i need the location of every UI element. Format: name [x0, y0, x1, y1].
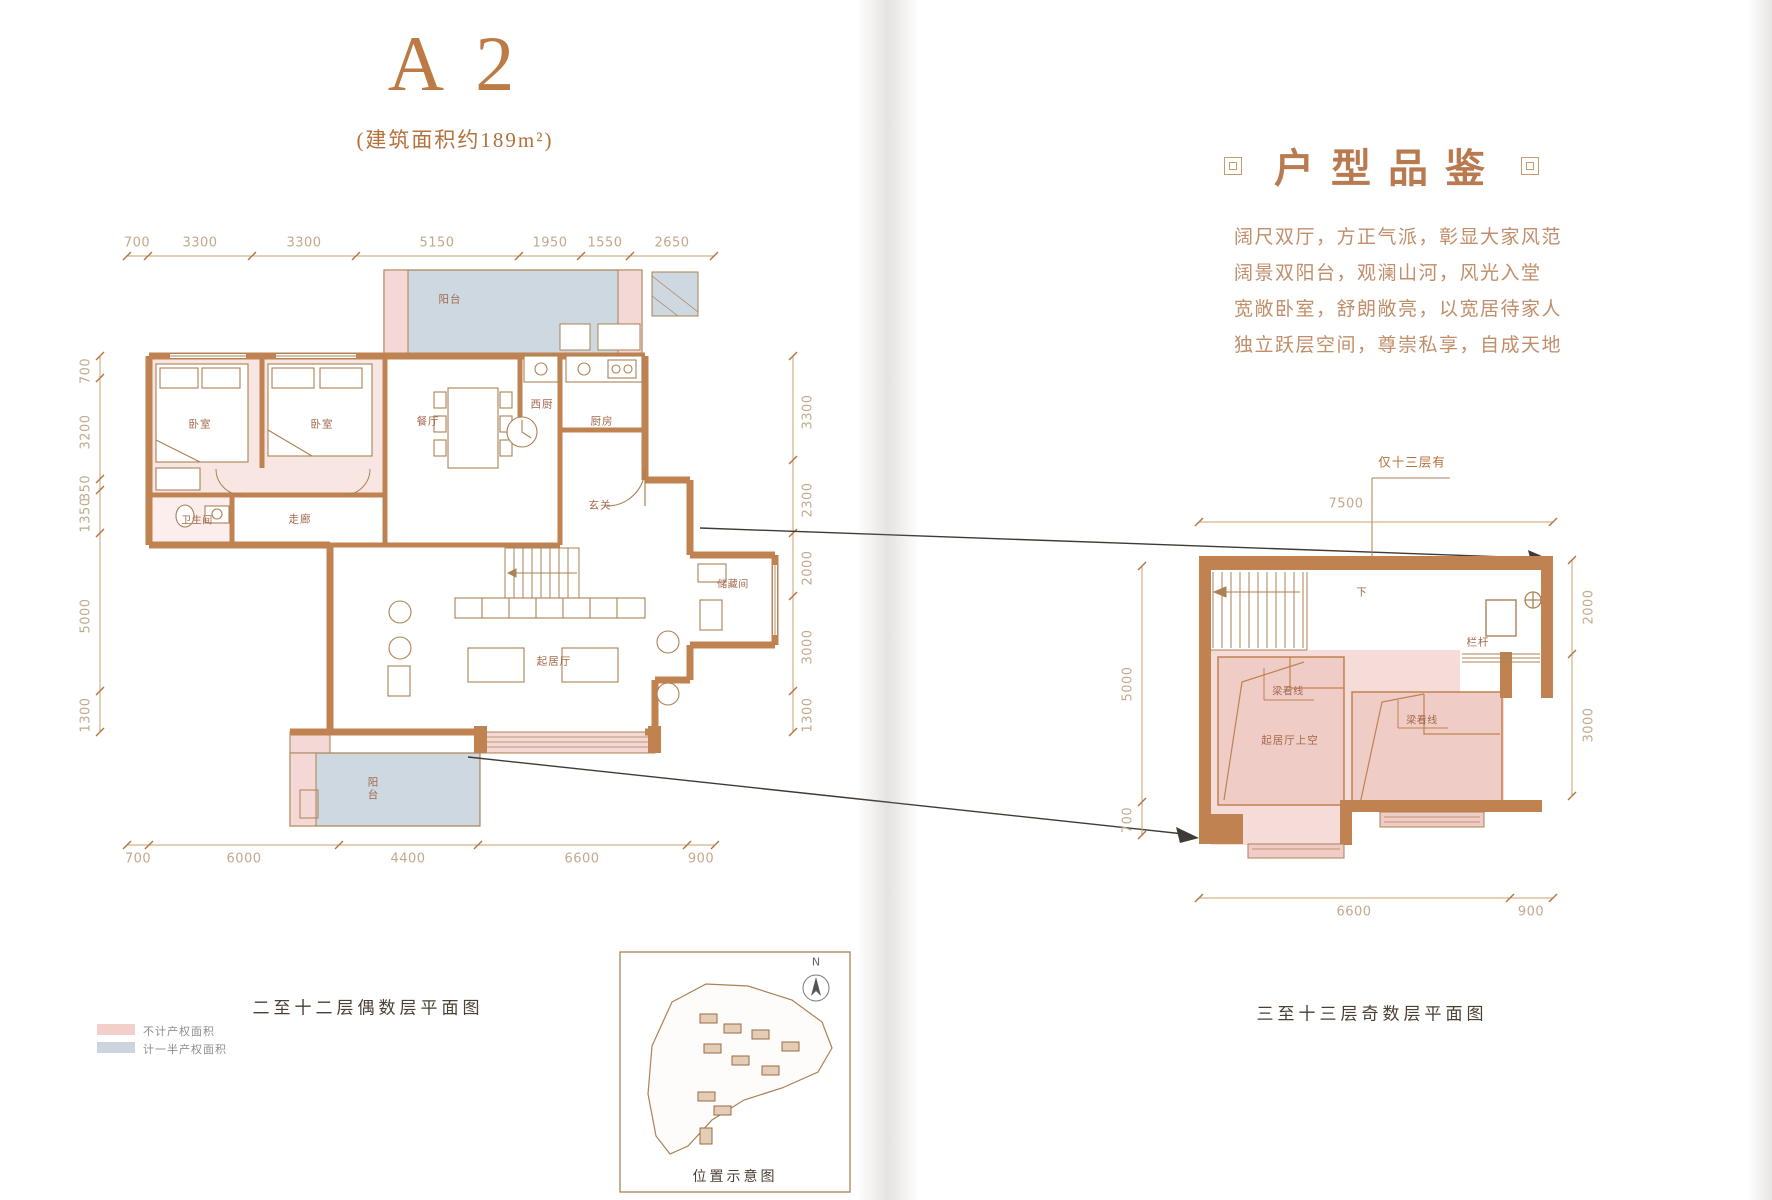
right-floor-plan	[1138, 478, 1576, 902]
bay-strip-left	[1248, 844, 1344, 858]
duplex-note: 仅十三层有	[1378, 452, 1446, 471]
dim-right-4: 1300	[801, 697, 816, 732]
dim-top-3: 5150	[419, 236, 454, 251]
dim-left-5: 1300	[79, 697, 94, 732]
room-label-living: 起居厅	[537, 654, 572, 669]
dim-left-1: 3200	[79, 414, 94, 449]
dim-right-3: 3000	[801, 629, 816, 664]
planter-box	[1486, 600, 1516, 636]
legend-swatch-excluded-area	[97, 1024, 135, 1035]
room-label-storage: 储藏间	[717, 576, 749, 591]
bay-post-2	[648, 726, 661, 753]
duplex-dim-right-lower: 3000	[1582, 707, 1597, 742]
description-line-2: 阔景双阳台，观澜山河，风光入堂	[1234, 256, 1562, 292]
dim-top-6: 2650	[654, 236, 689, 251]
right-plan-caption: 三至十三层奇数层平面图	[1257, 1000, 1488, 1025]
room-label-bathroom: 卫生间	[181, 512, 213, 527]
right-wall	[1541, 570, 1553, 698]
dim-top-1: 3300	[182, 236, 217, 251]
room-label-balcony-bottom: 阳台	[365, 777, 380, 802]
entry-door-arc	[607, 468, 645, 506]
description-line-3: 宽敞卧室，舒朗敞亮，以宽居待家人	[1234, 292, 1562, 328]
kitchen-duct-box-2	[598, 324, 640, 350]
legend-label-excluded-area: 不计产权面积	[143, 1023, 215, 1039]
legend-label-half-area: 计一半产权面积	[143, 1041, 227, 1057]
dim-bottom-4: 900	[688, 852, 714, 867]
label-beam-line-1: 梁看线	[1272, 683, 1304, 698]
void-room-1	[1218, 657, 1344, 805]
bottom-right-wall	[1352, 800, 1542, 812]
location-map-caption: 位置示意图	[693, 1166, 778, 1186]
dim-top-0: 700	[124, 236, 150, 251]
left-plan-caption: 二至十二层偶数层平面图	[253, 994, 484, 1019]
right-pillar	[1500, 652, 1512, 698]
top-wall	[1199, 556, 1553, 570]
room-label-corridor: 走廊	[289, 512, 312, 527]
dim-right-1: 2300	[801, 482, 816, 517]
room-label-dining: 餐厅	[417, 414, 440, 429]
dim-left-0: 700	[79, 358, 94, 384]
dim-bottom-1: 6000	[226, 852, 261, 867]
left-wall	[1199, 556, 1211, 842]
detail-description: 阔尺双厅，方正气派，彰显大家风范 阔景双阳台，观澜山河，风光入堂 宽敞卧室，舒朗…	[1234, 220, 1562, 364]
bottom-left-block	[1199, 814, 1243, 844]
label-railing: 栏杆	[1467, 635, 1490, 650]
dim-right-0: 3300	[801, 394, 816, 429]
legend-swatch-half-area	[97, 1042, 135, 1053]
dim-left-3: 1350	[79, 497, 94, 532]
duplex-dim-bottom-left: 6600	[1336, 905, 1371, 920]
duplex-dim-right-upper: 2000	[1582, 589, 1597, 624]
top-balcony	[384, 270, 698, 356]
floor-drain-icon	[1525, 592, 1541, 608]
step-wall	[1340, 800, 1352, 845]
dim-top-4: 1950	[532, 236, 567, 251]
detail-heading: 户型品鉴	[1274, 136, 1502, 194]
room-label-balcony-top: 阳台	[439, 292, 462, 307]
dim-bottom-2: 4400	[390, 852, 425, 867]
kitchen-duct-box	[560, 324, 590, 350]
dim-right-2: 2000	[801, 550, 816, 585]
duplex-dim-left-lower: 700	[1121, 807, 1136, 833]
stairs	[505, 548, 579, 598]
void-room-2	[1352, 692, 1502, 810]
bay-strip-right	[1380, 812, 1484, 827]
location-map	[620, 952, 850, 1192]
dim-bottom-0: 700	[125, 852, 151, 867]
dim-top-2: 3300	[286, 236, 321, 251]
duplex-dim-top: 7500	[1328, 497, 1363, 512]
bottom-balcony	[290, 753, 480, 826]
brochure-page: A 2 (建筑面积约189m²) 户型品鉴 阔尺双厅，方正气派，彰显大家风范 阔…	[0, 0, 1772, 1200]
page-title: A 2	[388, 19, 523, 109]
description-line-4: 独立跃层空间，尊崇私享，自成天地	[1234, 328, 1562, 364]
floorplan-artwork	[0, 0, 1772, 1200]
note-leader-line	[1372, 478, 1450, 556]
spiral-ornament-icon-left	[1224, 157, 1242, 175]
room-label-west-kitchen: 西厨	[531, 397, 554, 412]
duplex-dim-bottom-right: 900	[1518, 905, 1544, 920]
label-beam-line-2: 梁看线	[1406, 712, 1438, 727]
room-label-kitchen: 厨房	[591, 414, 614, 429]
furniture	[156, 356, 726, 705]
dim-left-4: 5000	[79, 598, 94, 633]
room-label-foyer: 玄关	[589, 498, 612, 513]
spiral-ornament-icon-right	[1521, 157, 1539, 175]
room-label-bedroom-2: 卧室	[311, 417, 334, 432]
bay-post	[474, 726, 487, 753]
duplex-dim-left-upper: 5000	[1121, 666, 1136, 701]
label-stairs-down: 下	[1356, 585, 1368, 600]
duplex-stairs	[1211, 572, 1307, 650]
page-subtitle: (建筑面积约189m²)	[356, 124, 553, 154]
dim-bottom-3: 6600	[564, 852, 599, 867]
left-floor-plan	[96, 252, 797, 849]
description-line-1: 阔尺双厅，方正气派，彰显大家风范	[1234, 220, 1562, 256]
label-living-void: 起居厅上空	[1261, 733, 1319, 748]
room-label-bedroom-1: 卧室	[189, 417, 212, 432]
dim-top-5: 1550	[587, 236, 622, 251]
compass-north-label: N	[812, 956, 820, 969]
